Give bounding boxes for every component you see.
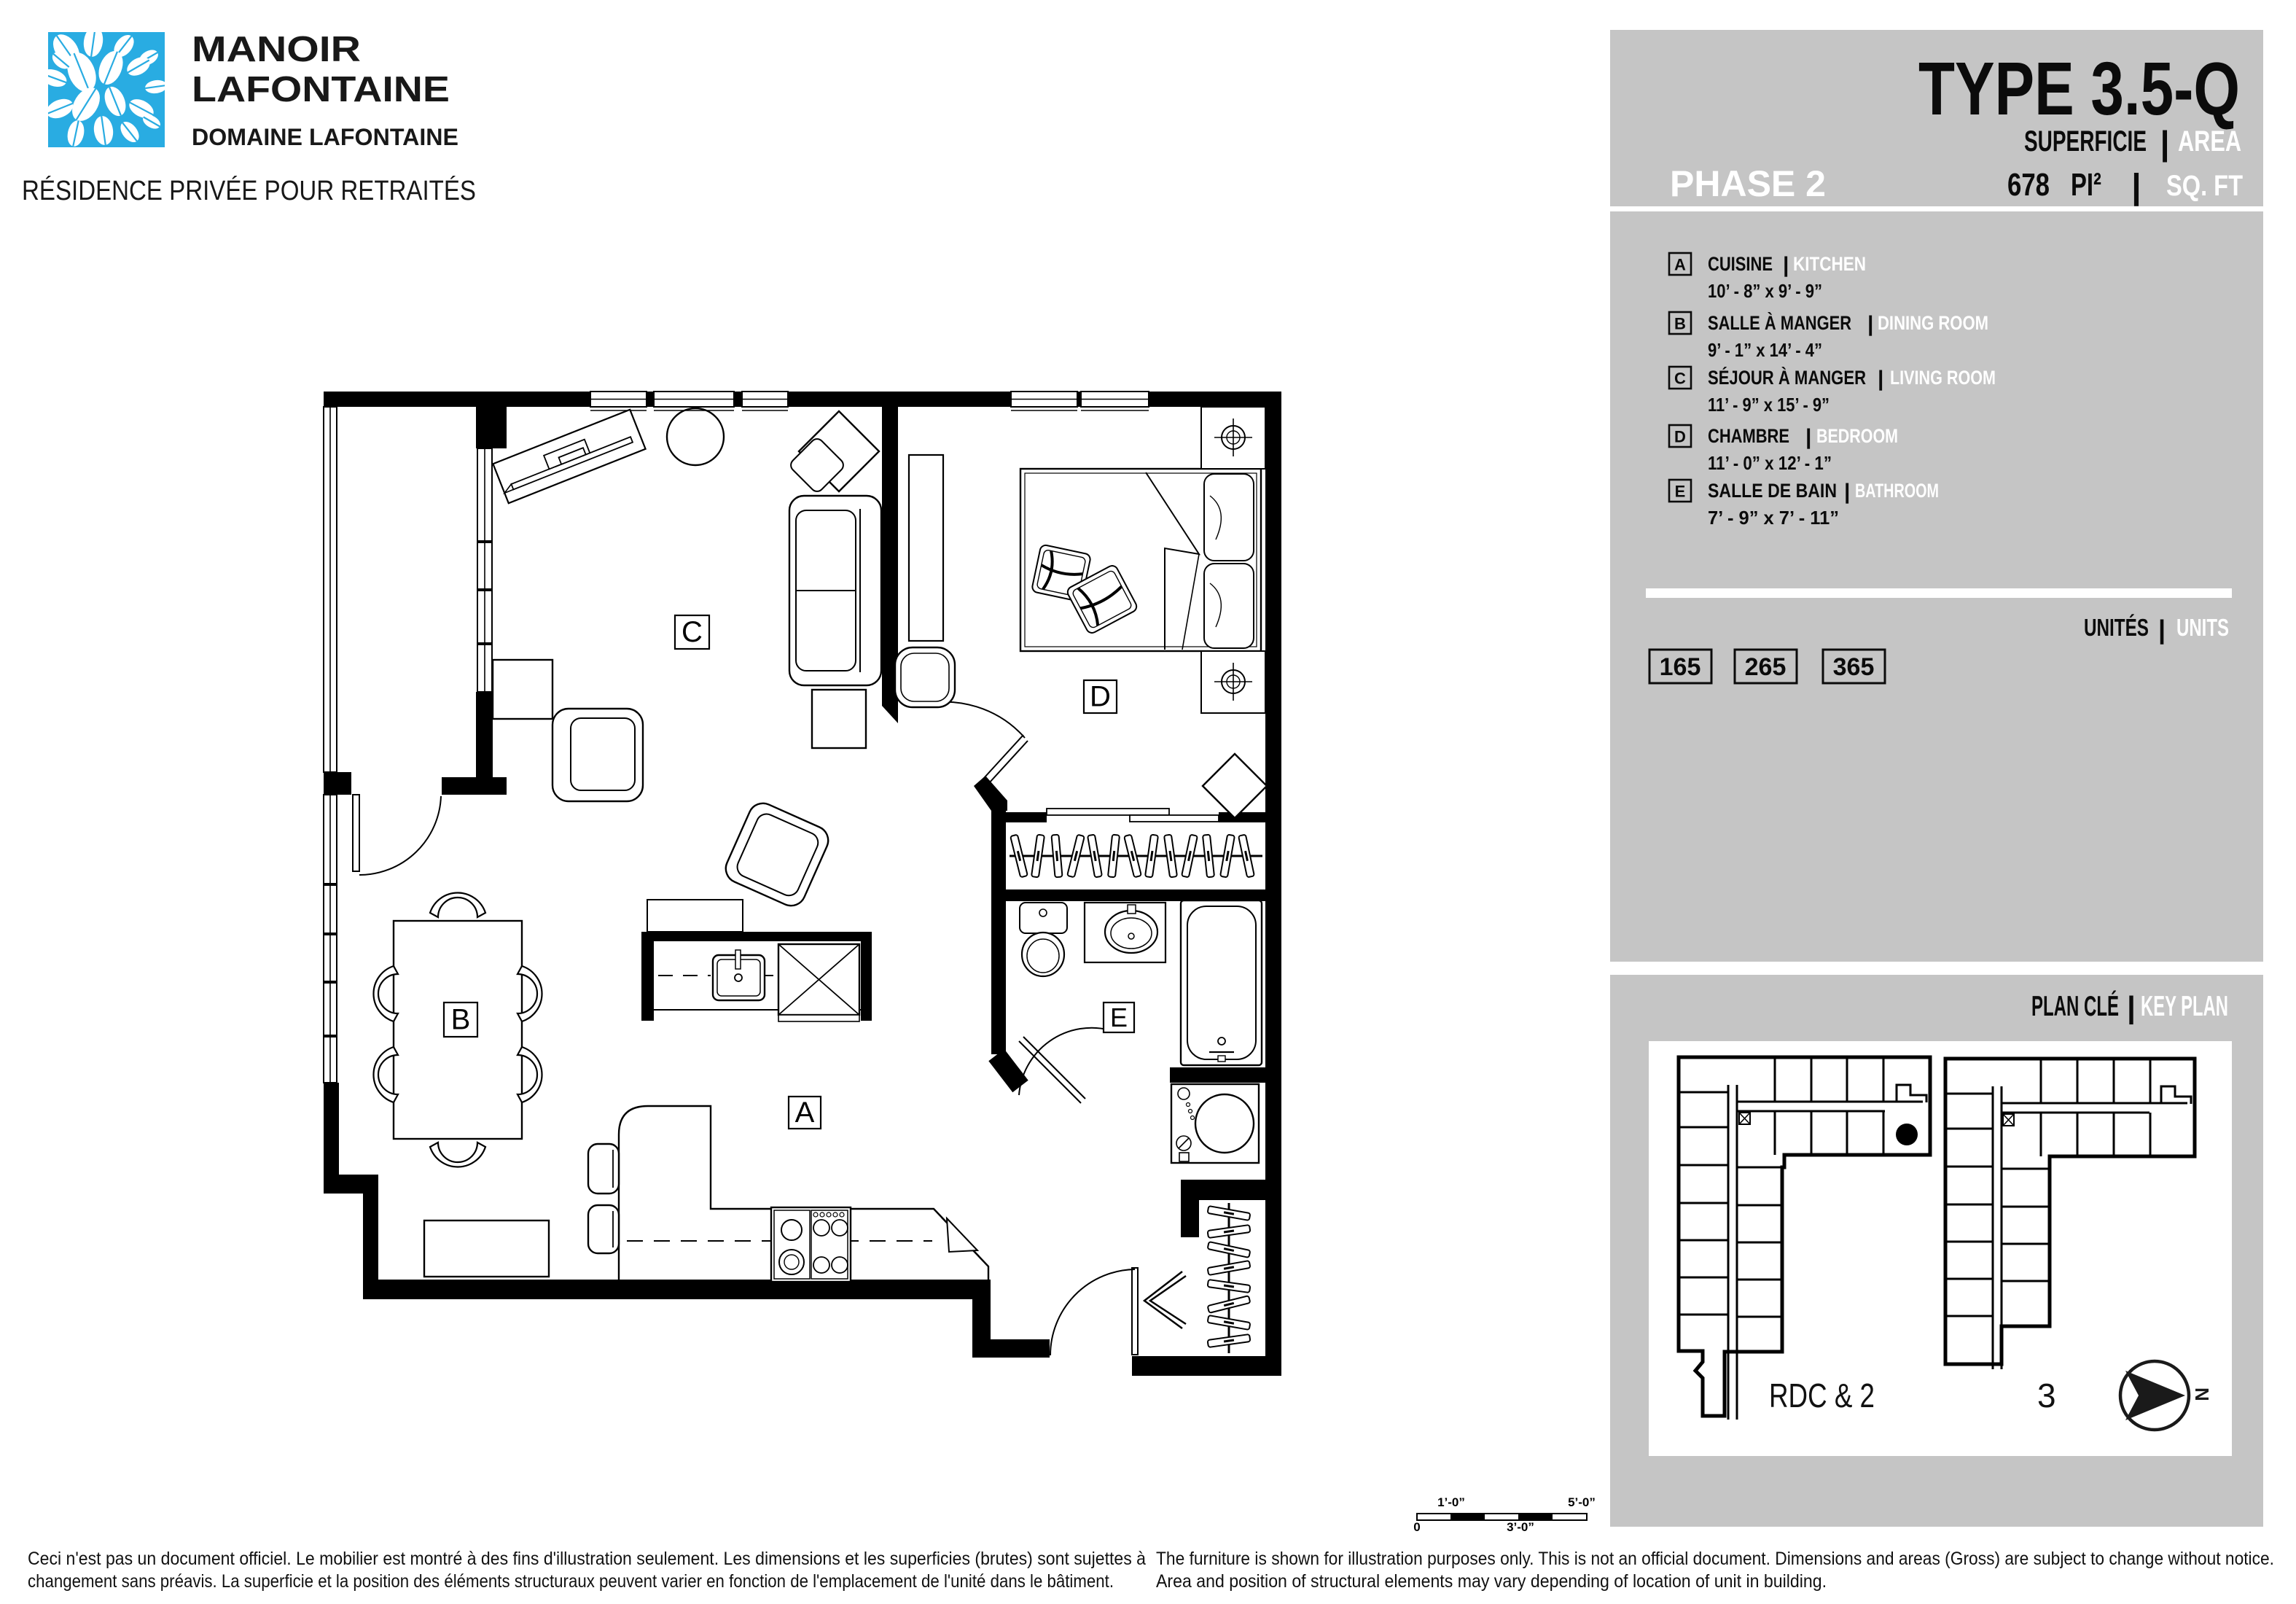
svg-text:Area and position of structura: Area and position of structural elements… xyxy=(1156,1571,1827,1592)
svg-text:PI²: PI² xyxy=(2071,167,2101,203)
svg-text:SUPERFICIE: SUPERFICIE xyxy=(2024,125,2147,157)
svg-text:MANOIR: MANOIR xyxy=(192,30,361,69)
svg-text:KEY PLAN: KEY PLAN xyxy=(2141,991,2228,1022)
svg-text:Ceci n'est pas un document off: Ceci n'est pas un document officiel. Le … xyxy=(28,1549,1146,1569)
svg-text:365: 365 xyxy=(1833,653,1875,681)
svg-text:|: | xyxy=(2131,168,2141,206)
svg-text:DOMAINE LAFONTAINE: DOMAINE LAFONTAINE xyxy=(192,124,458,150)
svg-text:DINING ROOM: DINING ROOM xyxy=(1878,312,1988,334)
svg-text:10’ - 8” x 9’ - 9”: 10’ - 8” x 9’ - 9” xyxy=(1708,280,1822,302)
svg-text:RÉSIDENCE PRIVÉE POUR RETRAITÉ: RÉSIDENCE PRIVÉE POUR RETRAITÉS xyxy=(22,175,476,206)
svg-text:CHAMBRE: CHAMBRE xyxy=(1708,425,1789,447)
svg-text:|: | xyxy=(1878,367,1883,391)
svg-text:A: A xyxy=(795,1097,815,1129)
svg-text:0: 0 xyxy=(1413,1520,1420,1534)
svg-text:|: | xyxy=(2127,990,2136,1025)
svg-text:SALLE DE BAIN: SALLE DE BAIN xyxy=(1708,480,1837,502)
svg-text:9’ - 1” x 14’ - 4”: 9’ - 1” x 14’ - 4” xyxy=(1708,339,1822,361)
svg-text:|: | xyxy=(1844,480,1850,504)
svg-text:11’ - 0” x 12’ - 1”: 11’ - 0” x 12’ - 1” xyxy=(1708,452,1832,474)
svg-text:RDC & 2: RDC & 2 xyxy=(1769,1377,1875,1414)
svg-text:LIVING ROOM: LIVING ROOM xyxy=(1890,367,1996,389)
svg-text:|: | xyxy=(2160,124,2170,162)
svg-text:3: 3 xyxy=(2037,1377,2056,1414)
svg-text:165: 165 xyxy=(1660,653,1701,681)
svg-text:E: E xyxy=(1675,483,1686,501)
svg-text:KITCHEN: KITCHEN xyxy=(1793,253,1866,275)
svg-text:D: D xyxy=(1090,681,1111,713)
svg-text:11’ - 9” x 15’ - 9”: 11’ - 9” x 15’ - 9” xyxy=(1708,394,1830,416)
svg-text:678: 678 xyxy=(2007,167,2050,203)
svg-text:BATHROOM: BATHROOM xyxy=(1855,480,1939,502)
svg-text:|: | xyxy=(1783,253,1789,277)
svg-text:|: | xyxy=(1867,312,1873,336)
svg-text:7’ - 9” x 7’ - 11”: 7’ - 9” x 7’ - 11” xyxy=(1708,507,1839,529)
svg-text:A: A xyxy=(1674,256,1686,274)
svg-text:|: | xyxy=(1805,425,1811,449)
svg-text:C: C xyxy=(682,616,703,648)
svg-text:SÉJOUR À MANGER: SÉJOUR À MANGER xyxy=(1708,366,1866,389)
svg-text:265: 265 xyxy=(1745,653,1787,681)
svg-text:PHASE 2: PHASE 2 xyxy=(1670,163,1826,204)
svg-text:3’-0”: 3’-0” xyxy=(1507,1520,1534,1534)
svg-text:changement sans préavis. La su: changement sans préavis. La superficie e… xyxy=(28,1571,1114,1592)
svg-text:D: D xyxy=(1674,428,1686,446)
svg-text:TYPE 3.5-Q: TYPE 3.5-Q xyxy=(1918,47,2240,131)
svg-text:C: C xyxy=(1674,370,1686,388)
svg-text:1’-0”: 1’-0” xyxy=(1437,1495,1465,1509)
svg-text:B: B xyxy=(451,1004,471,1036)
svg-text:5’-0”: 5’-0” xyxy=(1568,1495,1596,1509)
svg-text:LAFONTAINE: LAFONTAINE xyxy=(192,70,450,109)
svg-text:UNITS: UNITS xyxy=(2176,614,2229,641)
svg-text:UNITÉS: UNITÉS xyxy=(2084,614,2149,641)
svg-text:N: N xyxy=(2191,1387,2213,1401)
svg-text:E: E xyxy=(1110,1002,1128,1032)
svg-text:SQ. FT: SQ. FT xyxy=(2166,170,2243,202)
svg-text:The furniture is shown for ill: The furniture is shown for illustration … xyxy=(1156,1549,2274,1569)
svg-text:BEDROOM: BEDROOM xyxy=(1816,425,1898,447)
svg-text:B: B xyxy=(1674,315,1686,333)
svg-text:PLAN CLÉ: PLAN CLÉ xyxy=(2031,990,2119,1022)
svg-text:SALLE À MANGER: SALLE À MANGER xyxy=(1708,311,1851,334)
svg-text:CUISINE: CUISINE xyxy=(1708,253,1773,275)
svg-text:|: | xyxy=(2158,615,2166,645)
svg-text:AREA: AREA xyxy=(2178,125,2241,157)
